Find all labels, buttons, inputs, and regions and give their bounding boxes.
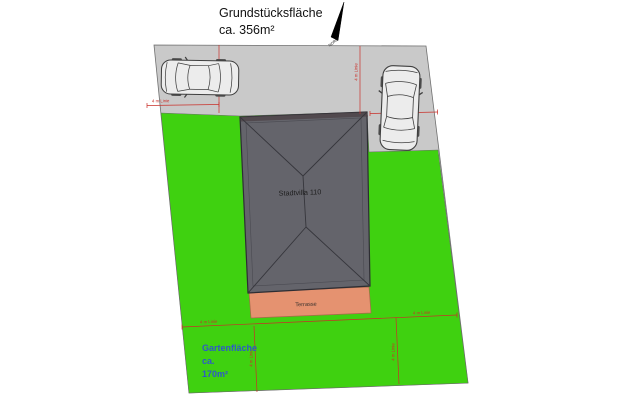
setback-label: 4 m Linie [354, 63, 359, 81]
house: Stadtvilla 110 [240, 112, 370, 293]
setback-label: 4 m Linie [200, 319, 218, 325]
plot-area-title-line2: ca. 356m² [219, 23, 275, 37]
garden-label-line3: 170m² [202, 369, 228, 379]
terrace-label: Terrasse [295, 302, 317, 309]
car-top-view-left [161, 57, 239, 99]
setback-label: 4 m Linie [413, 310, 431, 316]
garden-label-line2: ca. [202, 356, 215, 366]
car-top-view-right [376, 65, 424, 151]
plot-area-title: Grundstücksfläche ca. 356m² [219, 6, 323, 37]
plot-area-title-line1: Grundstücksfläche [219, 6, 323, 20]
garden-label-line1: Gartenfläche [202, 343, 257, 353]
setback-label: 4 m Linie [391, 343, 396, 361]
north-arrow: NORD [328, 2, 344, 48]
site-plan-svg: Terrasse Stadtvilla 110 4 m Linie 4 m Li… [0, 0, 620, 410]
site-plan-page: Terrasse Stadtvilla 110 4 m Linie 4 m Li… [0, 0, 620, 410]
setback-label: 4 m Linie [152, 98, 170, 103]
house-label: Stadtvilla 110 [279, 187, 322, 197]
north-arrow-icon [331, 2, 344, 41]
